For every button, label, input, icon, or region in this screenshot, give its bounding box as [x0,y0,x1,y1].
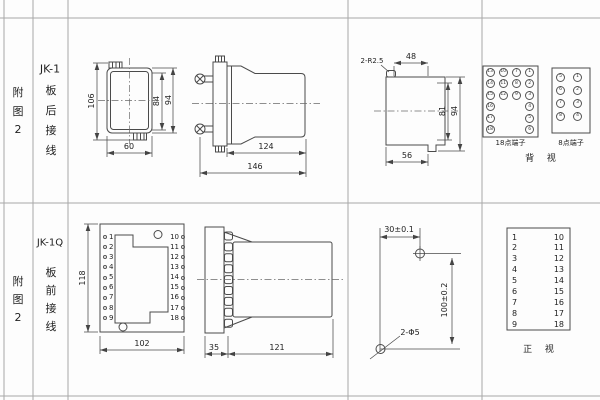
terminal-number: 6 [512,287,517,298]
terminal-circle: 18 [486,125,495,134]
terminal-number: 7 [109,294,113,301]
figure-label-row1: 附图2 [11,84,25,140]
model-label-jk1q: JK-1Q [37,238,63,249]
wiring-label-row2: 板前接线 [44,264,58,336]
terminal-circle: 3 [525,91,534,100]
wiring-label-row1: 板后接线 [44,81,58,161]
dim-label-118: 118 [79,270,87,285]
terminal-circle: 4 [525,102,534,111]
terminal-dot [103,245,107,249]
terminal-circle: 10 [499,68,508,77]
terminal-circle: 6 [556,86,565,95]
terminal-circle: 8 [556,112,565,121]
dim-label-94b: 94 [451,106,459,116]
terminal-dot [103,235,107,239]
terminal-circle: 4 [573,112,582,121]
terminal-number: 14 [540,276,564,287]
terminal-number: 9 [109,315,113,322]
terminal-number: 18 [170,315,179,322]
front-table-left-column: 1 2 3 4 5 6 7 8 9 [512,233,517,331]
terminal-number: 5 [512,276,517,287]
terminal-number: 12 [170,254,179,261]
figure-label-row2: 附图2 [11,273,25,327]
terminal-number: 2 [109,244,113,251]
terminal-number: 6 [109,284,113,291]
dim-label-124: 124 [258,143,273,151]
terminal-8-grid: 5 6 7 8 1 2 3 4 [552,71,586,124]
terminal-number: 18 [540,320,564,331]
terminal-number: 3 [109,254,113,261]
terminal-circle: 2 [573,86,582,95]
terminal-number: 13 [540,265,564,276]
terminal-circle: 7 [512,68,521,77]
terminal-dot [181,265,185,269]
terminal-circle: 5 [556,73,565,82]
hole-label-2-d5: 2-Φ5 [400,329,419,337]
technical-drawing-sheet: 附图2 JK-1 板后接线 附图2 JK-1Q 板前接线 106 60 84 9… [0,0,600,400]
terminal-dot [103,306,107,310]
jk1-side-dimensions [200,137,306,177]
panel-left-terminals: 1 2 3 4 5 6 7 8 9 [103,232,113,323]
terminal-number: 4 [512,265,517,276]
dim-label-60: 60 [124,143,134,151]
terminal-number: 10 [170,234,179,241]
terminal-number: 11 [540,243,564,254]
terminal-circle: 9 [512,91,521,100]
terminal-18-label: 18点端子 [496,139,526,147]
terminal-dot [181,306,185,310]
front-view-label: 正 视 [523,346,559,354]
terminal-number: 8 [512,309,517,320]
terminal-dot [181,255,185,259]
terminal-circle: 7 [556,99,565,108]
terminal-number: 4 [109,264,113,271]
terminal-number: 9 [512,320,517,331]
terminal-dot [103,316,107,320]
dim-label-106: 106 [88,93,96,108]
terminal-circle: 17 [486,114,495,123]
rear-view-label: 背 视 [525,155,561,163]
terminal-dot [103,296,107,300]
terminal-18-grid: 13 14 15 16 17 18 10 11 12 7 8 9 1 2 3 4… [484,67,537,136]
terminal-circle: 5 [525,114,534,123]
terminal-circle: 1 [525,68,534,77]
terminal-circle: 6 [525,125,534,134]
terminal-circle: 2 [525,79,534,88]
terminal-circle: 1 [573,73,582,82]
dim-label-84: 84 [153,96,161,106]
terminal-number: 16 [540,298,564,309]
terminal-number: 7 [512,298,517,309]
terminal-dot [181,235,185,239]
terminal-number: 15 [170,284,179,291]
terminal-number: 1 [512,233,517,244]
terminal-dot [103,265,107,269]
table-grid [0,0,600,400]
terminal-number: 13 [170,264,179,271]
jk1-side-view [195,56,305,152]
terminal-number: 8 [109,305,113,312]
terminal-8-label: 8点端子 [558,139,583,147]
dim-label-81: 81 [439,106,447,116]
dim-label-48: 48 [406,53,416,61]
dim-label-94: 94 [165,95,173,105]
jk1-cutout-view [381,65,445,152]
dim-label-146: 146 [247,163,262,171]
terminal-dot [181,245,185,249]
terminal-dot [103,286,107,290]
terminal-number: 3 [512,254,517,265]
jk1q-side-view [205,227,332,333]
terminal-dot [103,255,107,259]
terminal-circle: 3 [573,99,582,108]
dim-label-30: 30±0.1 [384,226,414,234]
terminal-number: 5 [109,274,113,281]
jk1-front-dimensions [93,63,177,157]
front-table-right-column: 10 11 12 13 14 15 16 17 18 [540,233,564,331]
terminal-number: 17 [170,305,179,312]
terminal-number: 2 [512,243,517,254]
dim-label-35: 35 [209,344,219,352]
terminal-circle: 13 [486,68,495,77]
terminal-circle: 11 [499,79,508,88]
model-label-jk1: JK-1 [40,63,60,76]
terminal-number: 10 [540,233,564,244]
radius-label-2-r2.5: 2-R2.5 [361,57,384,65]
terminal-circle: 15 [486,91,495,100]
terminal-dot [181,296,185,300]
terminal-number: 1 [109,234,113,241]
dim-label-100: 100±0.2 [441,283,449,318]
terminal-number: 15 [540,287,564,298]
terminal-circle: 8 [512,79,521,88]
terminal-number: 12 [540,254,564,265]
terminal-circle: 12 [499,91,508,100]
terminal-circle: 16 [486,102,495,111]
terminal-dot [103,276,107,280]
dim-label-121: 121 [269,344,284,352]
terminal-dot [181,276,185,280]
panel-right-terminals: 10 11 12 13 14 15 16 17 18 [158,232,185,323]
dim-label-56: 56 [402,152,412,160]
terminal-number: 14 [170,274,179,281]
terminal-dot [181,316,185,320]
terminal-number: 16 [170,294,179,301]
terminal-number: 17 [540,309,564,320]
dim-label-102: 102 [134,340,149,348]
drawing-canvas [0,0,600,400]
terminal-circle: 14 [486,79,495,88]
terminal-dot [181,286,185,290]
terminal-number: 11 [170,244,179,251]
